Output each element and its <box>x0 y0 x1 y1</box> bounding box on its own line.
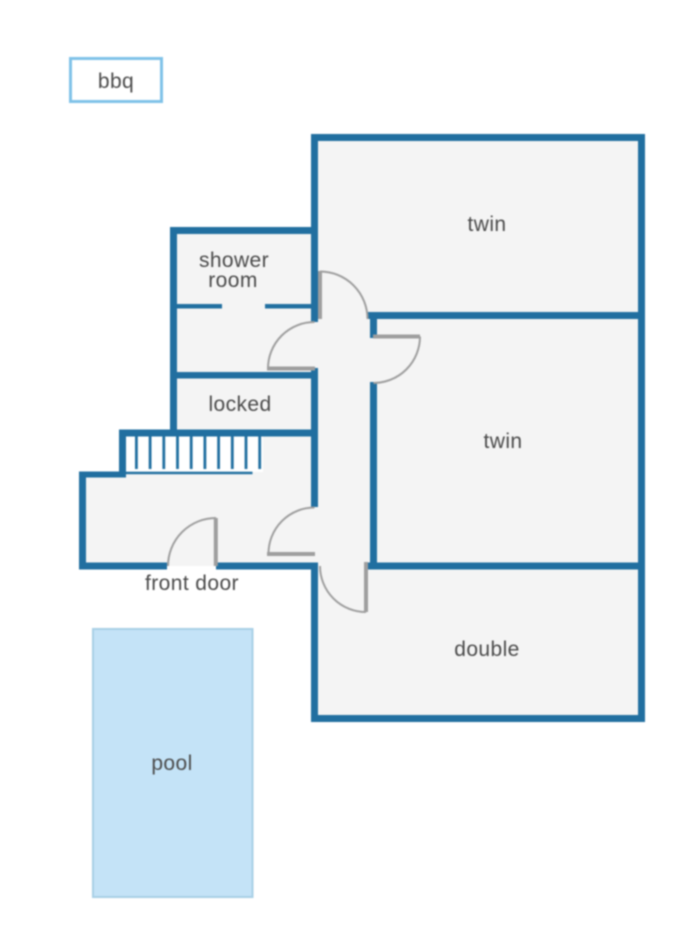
svg-text:bbq: bbq <box>98 70 134 93</box>
svg-text:front door: front door <box>145 572 239 595</box>
svg-text:room: room <box>208 269 257 292</box>
svg-text:twin: twin <box>484 430 523 453</box>
svg-text:locked: locked <box>208 393 271 416</box>
svg-text:double: double <box>454 638 519 661</box>
svg-text:twin: twin <box>468 213 507 236</box>
svg-text:pool: pool <box>151 752 192 775</box>
